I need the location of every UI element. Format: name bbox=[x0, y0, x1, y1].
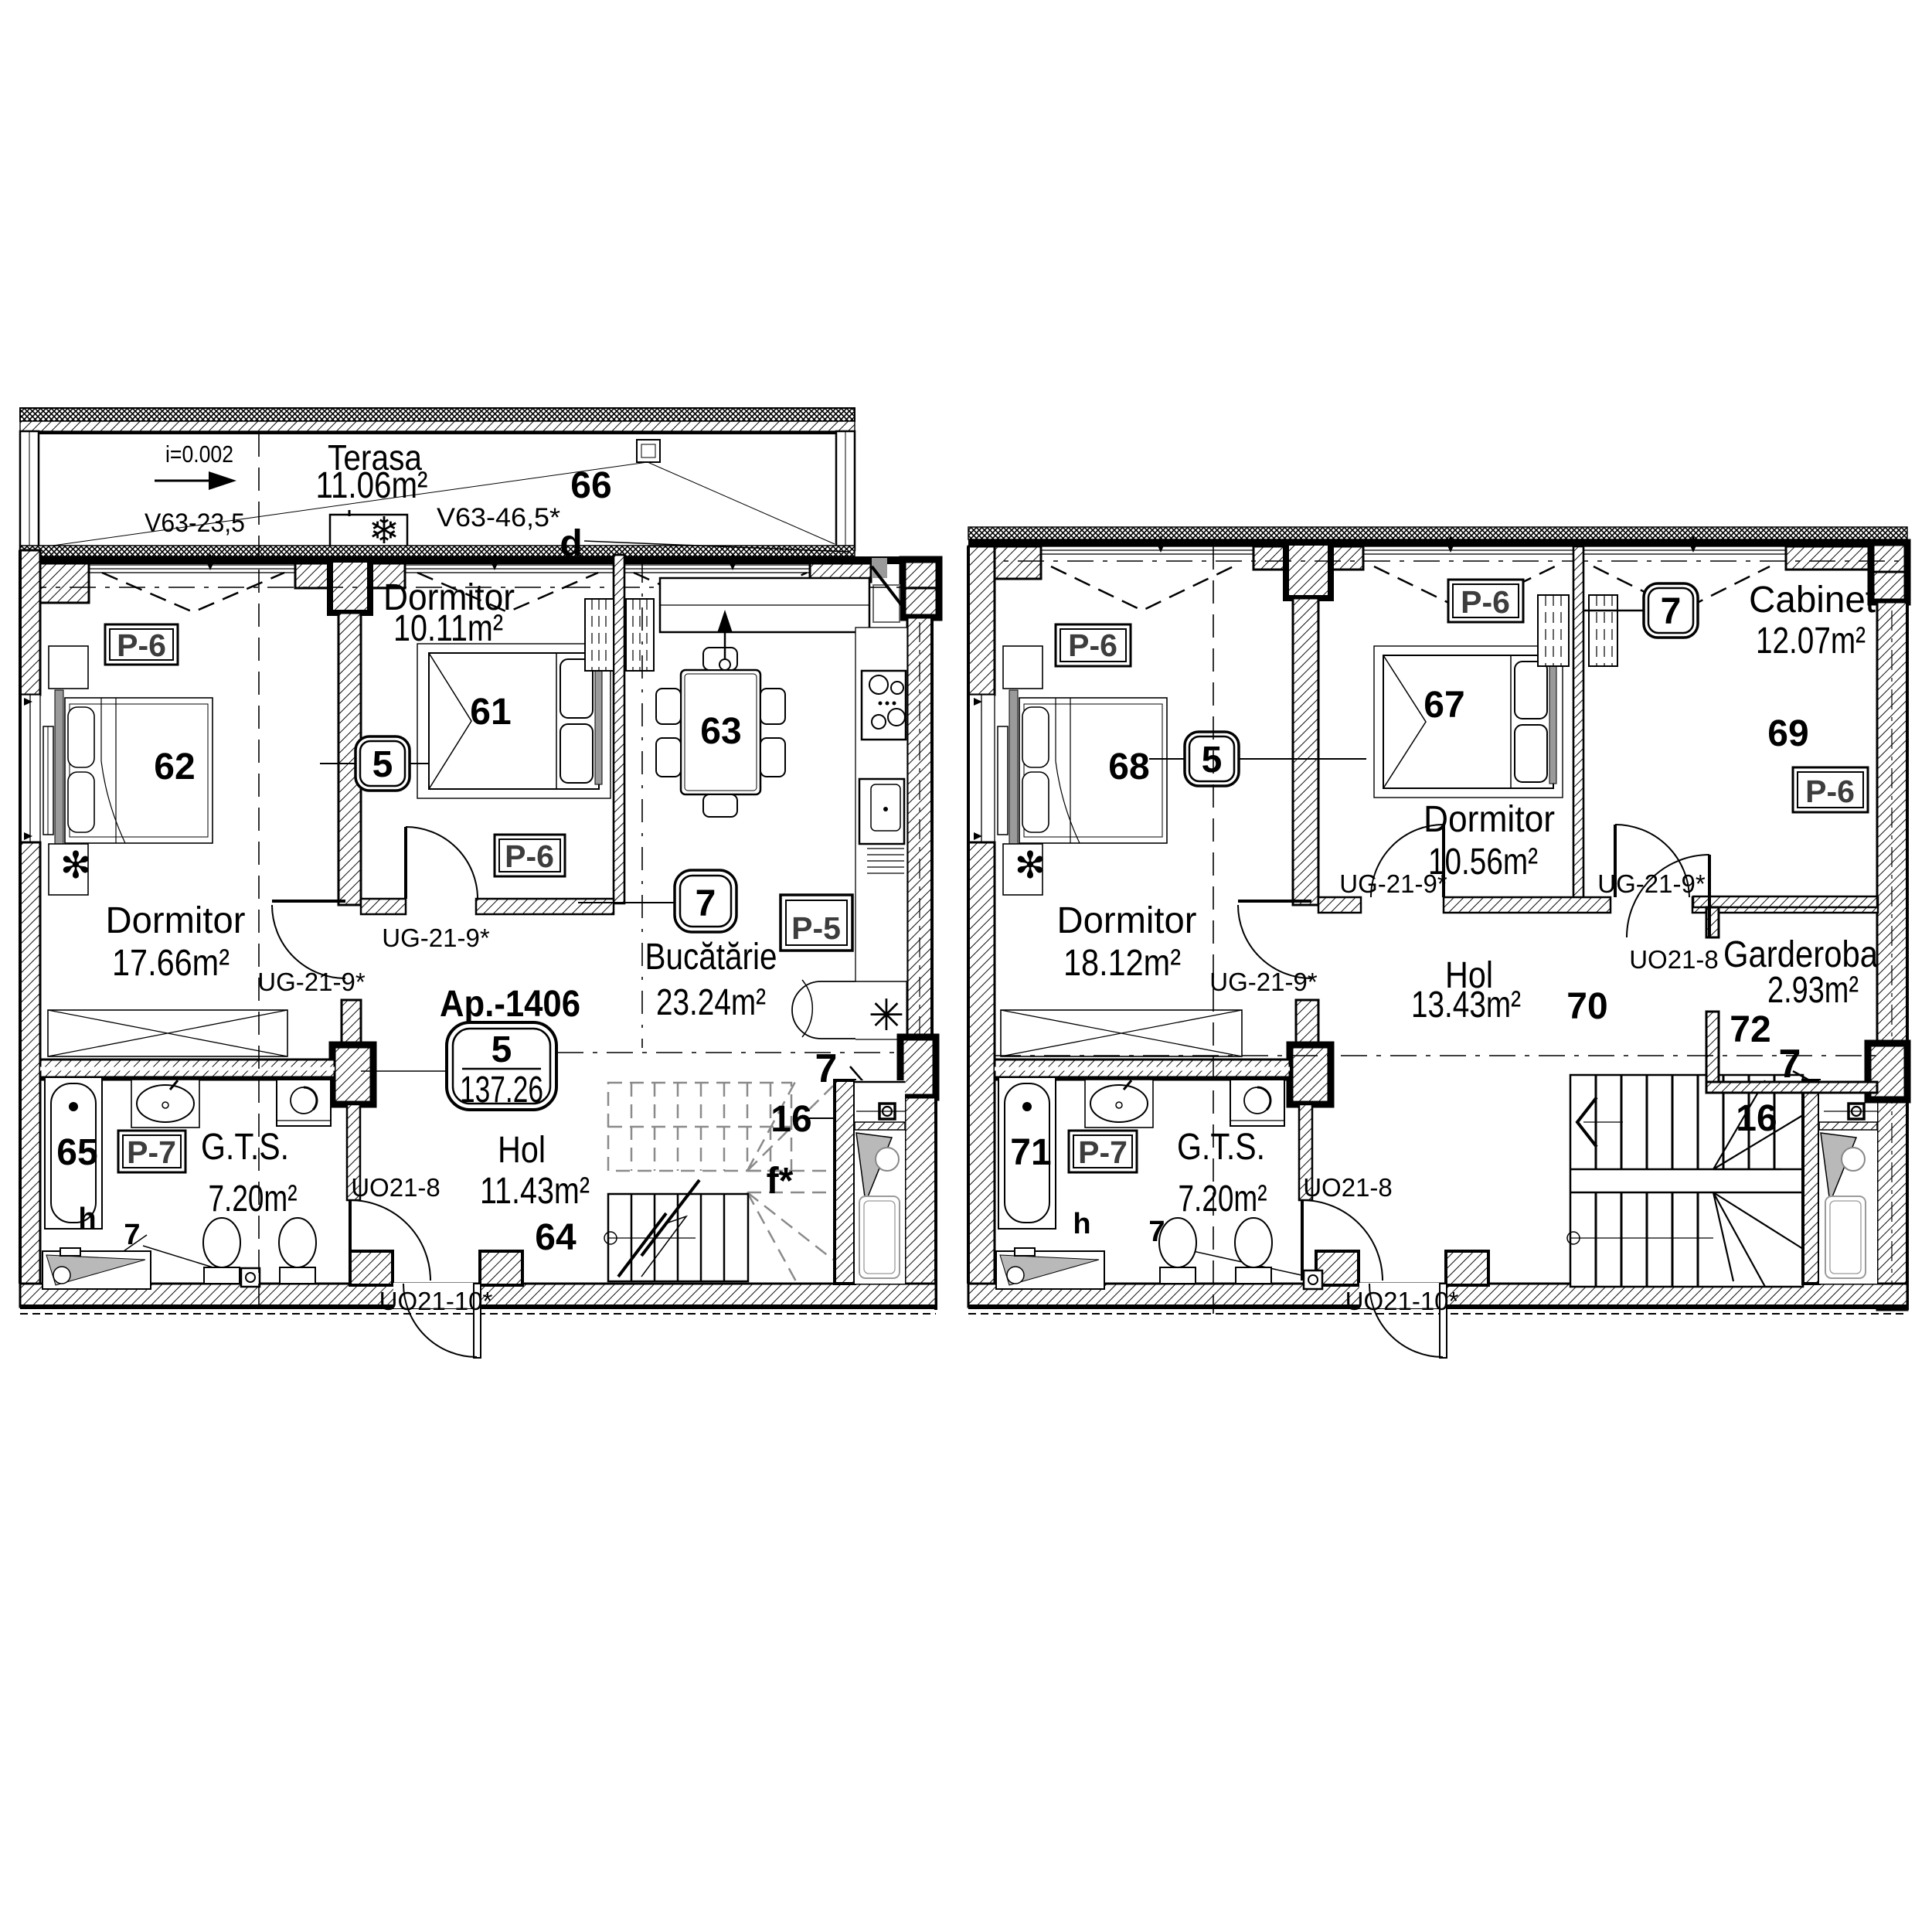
svg-text:✳: ✳ bbox=[869, 991, 905, 1039]
svg-text:63: 63 bbox=[700, 711, 741, 752]
svg-text:67: 67 bbox=[1423, 685, 1464, 726]
svg-text:P-6: P-6 bbox=[1461, 584, 1510, 620]
svg-text:71: 71 bbox=[1010, 1132, 1051, 1173]
svg-text:G.T.S.: G.T.S. bbox=[201, 1127, 289, 1168]
svg-text:P-7: P-7 bbox=[127, 1134, 176, 1170]
svg-text:62: 62 bbox=[154, 747, 195, 787]
svg-text:68: 68 bbox=[1108, 747, 1149, 787]
svg-text:61: 61 bbox=[470, 692, 511, 733]
svg-text:V63-23,5: V63-23,5 bbox=[145, 509, 245, 538]
svg-text:UO21-8: UO21-8 bbox=[1303, 1173, 1393, 1202]
svg-text:P-7: P-7 bbox=[1078, 1134, 1128, 1170]
svg-text:7.20m²: 7.20m² bbox=[1179, 1179, 1267, 1219]
svg-text:11.43m²: 11.43m² bbox=[480, 1171, 590, 1212]
svg-text:16: 16 bbox=[770, 1099, 811, 1140]
svg-text:5: 5 bbox=[492, 1029, 512, 1070]
svg-text:UG-21-9*: UG-21-9* bbox=[257, 968, 366, 996]
svg-text:Bucătărie: Bucătărie bbox=[645, 937, 777, 978]
svg-text:G.T.S.: G.T.S. bbox=[1177, 1127, 1265, 1168]
svg-text:UO21-8: UO21-8 bbox=[351, 1173, 440, 1202]
svg-text:Dormitor: Dormitor bbox=[1057, 900, 1197, 941]
svg-text:17.66m²: 17.66m² bbox=[112, 943, 230, 984]
svg-text:66: 66 bbox=[570, 465, 611, 506]
svg-text:P-6: P-6 bbox=[117, 628, 166, 663]
svg-text:UG-21-9*: UG-21-9* bbox=[382, 923, 490, 952]
svg-text:P-5: P-5 bbox=[791, 910, 841, 946]
svg-text:i=0.002: i=0.002 bbox=[165, 440, 233, 468]
svg-text:Cabinet: Cabinet bbox=[1749, 580, 1876, 621]
svg-text:UO21-10*: UO21-10* bbox=[379, 1287, 493, 1315]
svg-text:10.11m²: 10.11m² bbox=[393, 608, 503, 649]
svg-text:64: 64 bbox=[535, 1217, 577, 1258]
svg-text:UG-21-9*: UG-21-9* bbox=[1209, 968, 1318, 996]
svg-text:UO21-10*: UO21-10* bbox=[1345, 1287, 1459, 1315]
svg-text:7: 7 bbox=[1779, 1042, 1801, 1087]
svg-text:P-6: P-6 bbox=[1805, 774, 1855, 809]
svg-text:2.93m²: 2.93m² bbox=[1767, 970, 1859, 1011]
svg-text:137.26: 137.26 bbox=[460, 1070, 543, 1111]
svg-text:23.24m²: 23.24m² bbox=[656, 982, 766, 1023]
svg-text:5: 5 bbox=[1202, 740, 1223, 781]
svg-text:7: 7 bbox=[696, 883, 716, 924]
svg-text:13.43m²: 13.43m² bbox=[1411, 985, 1521, 1026]
svg-text:5: 5 bbox=[372, 744, 393, 785]
svg-text:72: 72 bbox=[1730, 1009, 1770, 1050]
svg-text:69: 69 bbox=[1767, 713, 1808, 754]
svg-text:70: 70 bbox=[1566, 986, 1607, 1027]
svg-text:UO21-8: UO21-8 bbox=[1629, 945, 1719, 974]
svg-text:h: h bbox=[1073, 1208, 1090, 1240]
svg-text:f*: f* bbox=[767, 1161, 794, 1202]
svg-text:12.07m²: 12.07m² bbox=[1756, 621, 1866, 662]
svg-text:V63-46,5*: V63-46,5* bbox=[437, 503, 560, 532]
svg-text:7.20m²: 7.20m² bbox=[209, 1179, 298, 1219]
svg-text:UG-21-9*: UG-21-9* bbox=[1597, 869, 1706, 898]
svg-text:65: 65 bbox=[56, 1132, 97, 1173]
svg-text:d: d bbox=[560, 523, 582, 564]
svg-text:h: h bbox=[78, 1202, 96, 1235]
svg-text:10.56m²: 10.56m² bbox=[1428, 842, 1538, 883]
svg-text:✻: ✻ bbox=[60, 845, 91, 886]
svg-text:Dormitor: Dormitor bbox=[106, 900, 246, 941]
svg-text:18.12m²: 18.12m² bbox=[1063, 943, 1181, 984]
svg-text:P-6: P-6 bbox=[505, 838, 554, 874]
svg-text:7: 7 bbox=[124, 1219, 140, 1251]
svg-text:16: 16 bbox=[1736, 1098, 1777, 1139]
svg-text:P-6: P-6 bbox=[1068, 628, 1117, 663]
svg-text:✻: ✻ bbox=[1015, 845, 1046, 886]
svg-text:Hol: Hol bbox=[498, 1130, 546, 1171]
svg-text:Ap.-1406: Ap.-1406 bbox=[440, 984, 580, 1025]
svg-text:11.06m²: 11.06m² bbox=[316, 465, 428, 506]
svg-text:Dormitor: Dormitor bbox=[1423, 799, 1555, 840]
svg-text:7: 7 bbox=[1661, 591, 1682, 632]
